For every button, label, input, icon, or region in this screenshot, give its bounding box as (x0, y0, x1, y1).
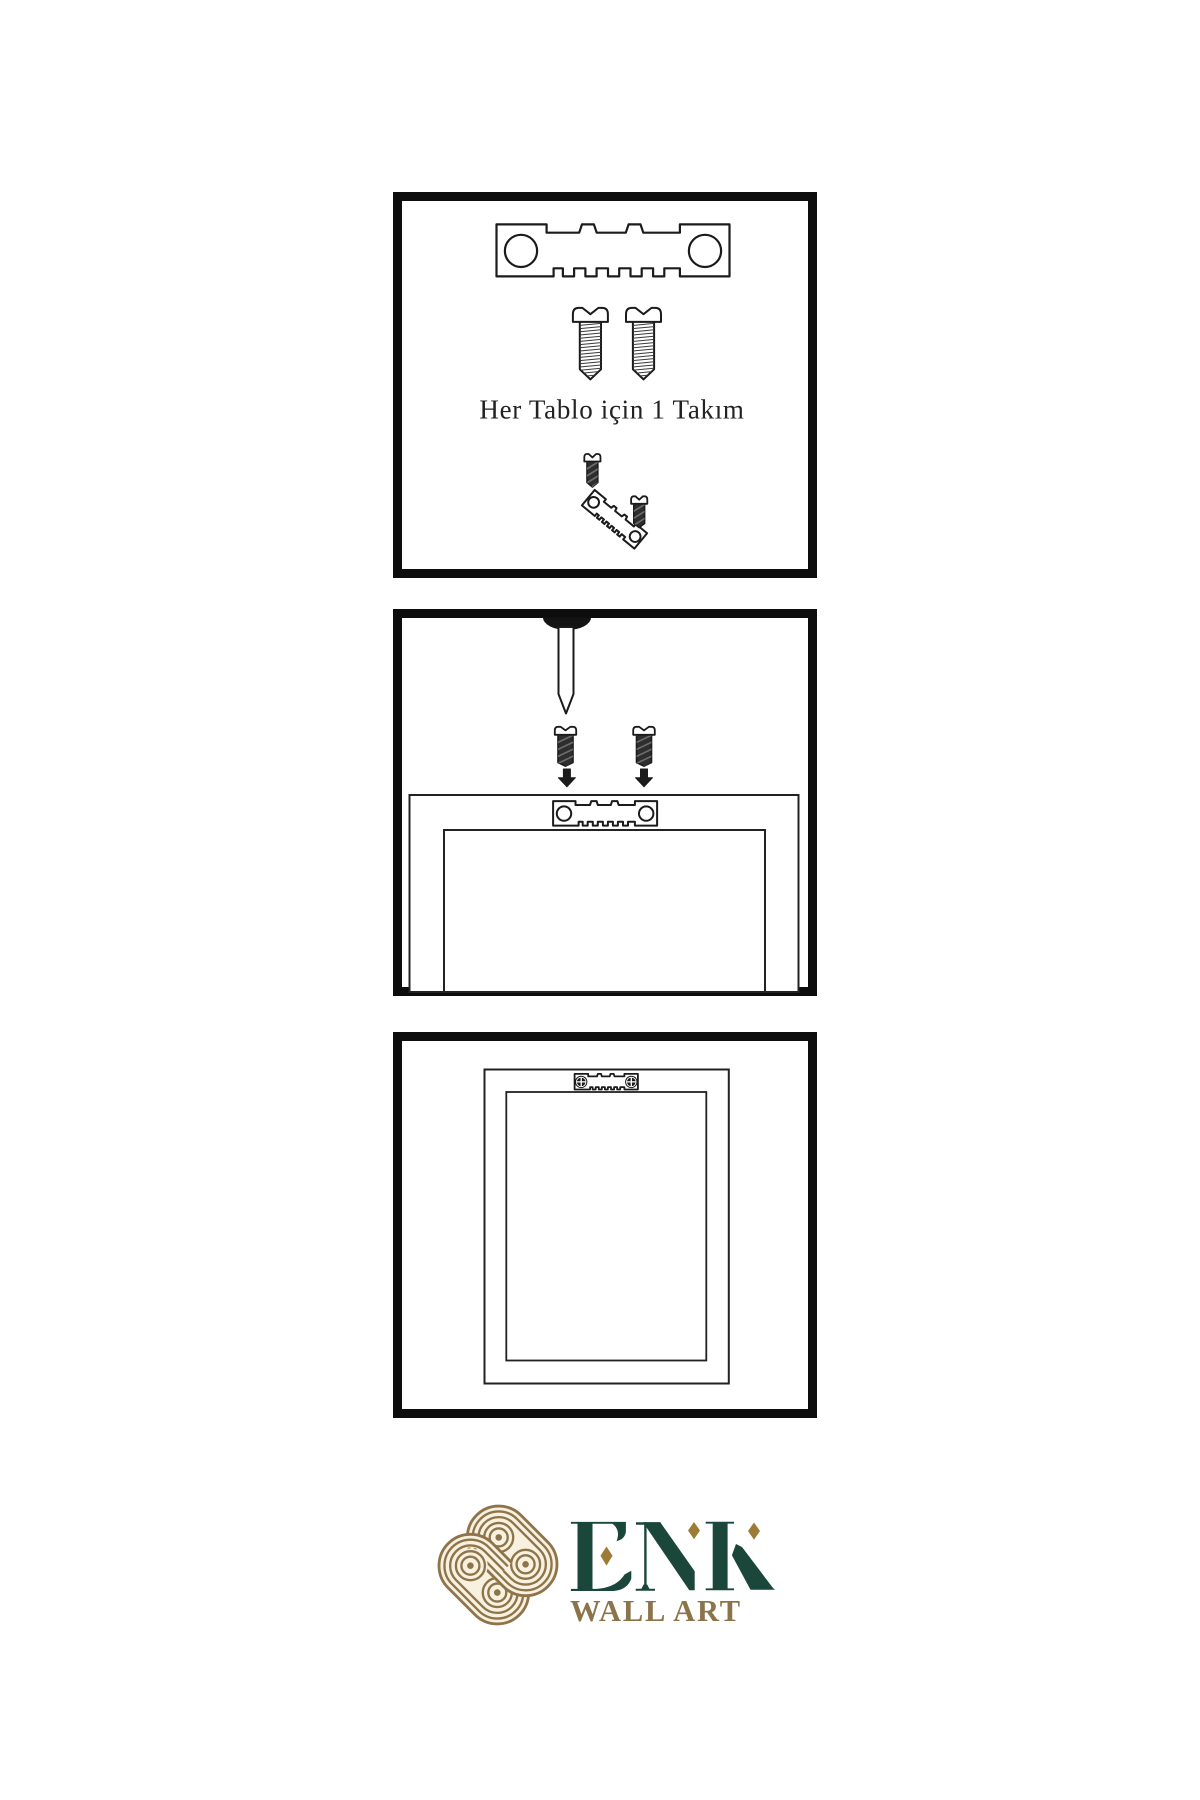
svg-text:Her Tablo için 1 Takım: Her Tablo için 1 Takım (479, 395, 744, 425)
svg-text:WALL ART: WALL ART (570, 1594, 742, 1628)
